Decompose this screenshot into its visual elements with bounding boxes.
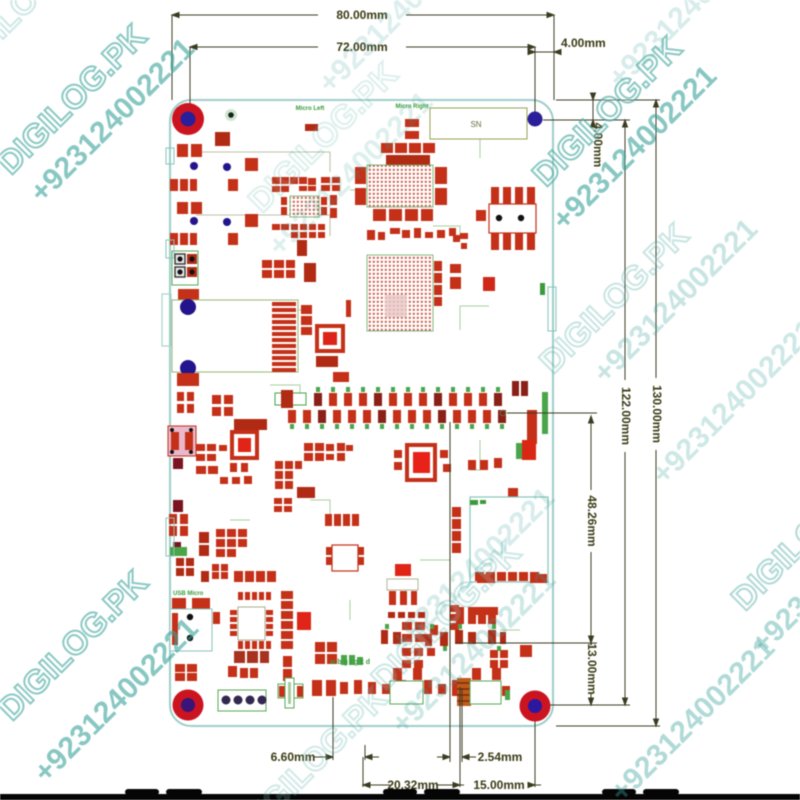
svg-text:130.00mm: 130.00mm [650, 385, 664, 443]
svg-text:13.00mm: 13.00mm [585, 643, 599, 694]
svg-text:w b g i g k d: w b g i g k d [329, 659, 370, 666]
svg-text:15.00mm: 15.00mm [473, 778, 524, 792]
svg-text:4.00mm: 4.00mm [561, 36, 606, 50]
svg-text:48.26mm: 48.26mm [585, 495, 599, 546]
svg-text:122.00mm: 122.00mm [619, 387, 633, 445]
svg-text:2.54mm: 2.54mm [478, 750, 523, 764]
svg-text:Micro Left: Micro Left [296, 106, 325, 112]
svg-text:USB Micro: USB Micro [173, 591, 204, 597]
svg-text:SN: SN [470, 120, 481, 129]
